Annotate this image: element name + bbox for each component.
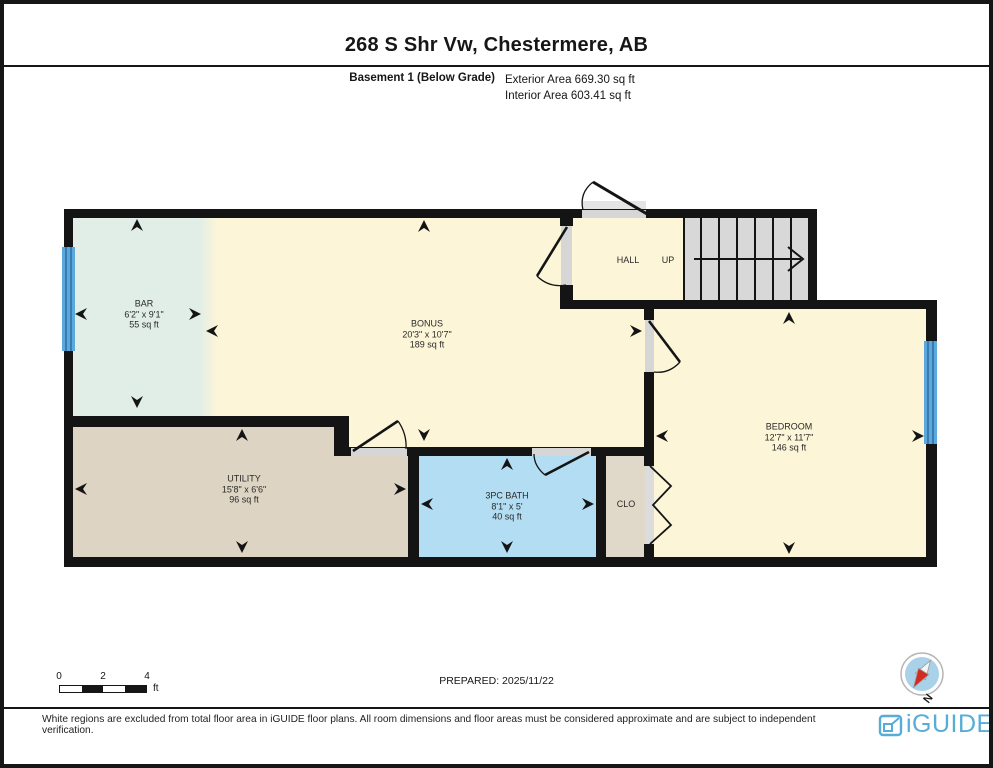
stairs bbox=[683, 217, 808, 300]
bedroom-window-icon bbox=[924, 341, 937, 444]
compass-north-label: N bbox=[921, 692, 935, 706]
room-label-bonus: BONUS 20'3" x 10'7" 189 sq ft bbox=[402, 318, 451, 350]
compass-icon: N bbox=[897, 650, 949, 710]
iguide-logo-text: iGUIDE bbox=[906, 710, 993, 739]
room-label-hall: HALL bbox=[617, 255, 640, 266]
disclaimer-text: White regions are excluded from total fl… bbox=[42, 714, 862, 736]
floorplan-drawing bbox=[4, 4, 993, 768]
prepared-date: PREPARED: 2025/11/22 bbox=[4, 675, 989, 687]
footer-divider bbox=[4, 707, 989, 709]
room-label-closet: CLO bbox=[617, 499, 636, 510]
room-label-bedroom: BEDROOM 12'7" x 11'7" 146 sq ft bbox=[765, 421, 814, 453]
iguide-logo: iGUIDE bbox=[878, 710, 993, 739]
room-label-utility: UTILITY 15'8" x 6'6" 96 sq ft bbox=[222, 473, 266, 505]
iguide-logo-icon bbox=[878, 712, 904, 738]
room-label-bath: 3PC BATH 8'1" x 5' 40 sq ft bbox=[485, 490, 528, 522]
floorplan-page: 268 S Shr Vw, Chestermere, AB Basement 1… bbox=[0, 0, 993, 768]
room-label-bar: BAR 6'2" x 9'1" 55 sq ft bbox=[124, 298, 163, 330]
stairs-up-label: UP bbox=[662, 255, 675, 266]
bar-window-icon bbox=[62, 247, 75, 351]
